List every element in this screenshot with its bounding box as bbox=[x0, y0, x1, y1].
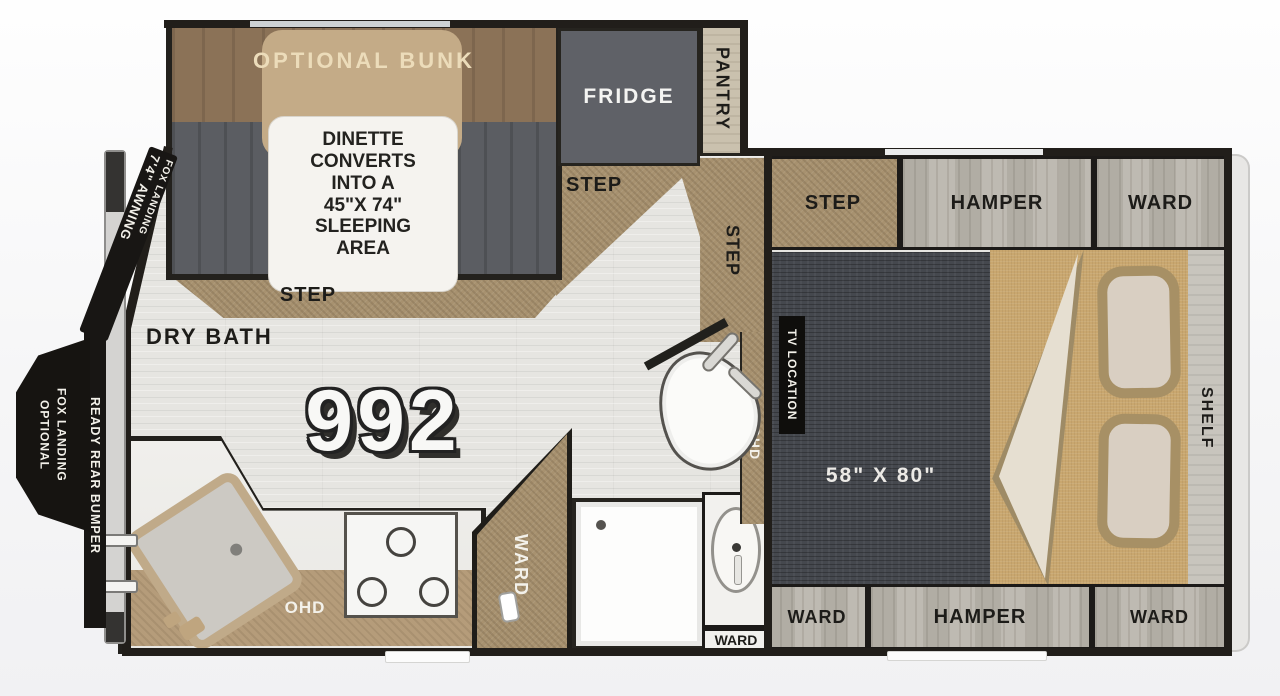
ward-bottom-right: WARD bbox=[1092, 584, 1227, 650]
galley-step-label: STEP bbox=[566, 174, 622, 197]
optional-fox-landing-flag: OPTIONAL FOX LANDING bbox=[16, 338, 90, 532]
kitchen-ohd-label: OHD bbox=[270, 598, 340, 618]
optional-fox-landing-line1: OPTIONAL bbox=[38, 400, 52, 470]
pillow bbox=[1097, 265, 1181, 398]
ward-bottom-right-label: WARD bbox=[1130, 607, 1189, 628]
floorplan-992: OHD WARD WARD OHD DINETTE CONVERTS INTO … bbox=[0, 0, 1280, 696]
dry-bath-label: DRY BATH bbox=[146, 324, 273, 350]
hamper-top-label: HAMPER bbox=[951, 192, 1044, 215]
dinette-window bbox=[250, 21, 450, 27]
rear-bumper-rail-segment bbox=[106, 152, 124, 212]
dinette-step-label: STEP bbox=[262, 284, 354, 307]
fridge-label: FRIDGE bbox=[583, 85, 674, 109]
optional-bunk-label: OPTIONAL BUNK bbox=[196, 48, 532, 74]
burner-icon bbox=[419, 577, 449, 607]
pantry-side-wall bbox=[740, 20, 748, 156]
bottom-wall bbox=[122, 648, 1232, 656]
pantry-label: PANTRY bbox=[712, 47, 733, 131]
bedroom-step-label: STEP bbox=[805, 192, 861, 215]
hamper-top: HAMPER bbox=[900, 156, 1094, 250]
right-wall bbox=[1224, 148, 1232, 656]
optional-fox-landing-line2: FOX LANDING bbox=[55, 388, 69, 482]
pantry: PANTRY bbox=[700, 22, 744, 156]
bedroom-divider-wall bbox=[764, 156, 772, 650]
bath-ward-label: WARD bbox=[510, 534, 531, 597]
sink-drain bbox=[228, 541, 245, 558]
tv-location-tag: TV LOCATION bbox=[779, 316, 805, 434]
stove bbox=[344, 512, 458, 618]
bedroom-window bbox=[885, 149, 1043, 155]
ward-bottom-left-label: WARD bbox=[788, 607, 847, 628]
vanity-ward-label: WARD bbox=[715, 632, 758, 648]
bottom-slide-marker bbox=[385, 651, 470, 663]
dinette-slideout: DINETTE CONVERTS INTO A 45"X 74" SLEEPIN… bbox=[166, 20, 562, 280]
hall-step-label-wrap: STEP bbox=[719, 208, 745, 294]
dinette-note-card: DINETTE CONVERTS INTO A 45"X 74" SLEEPIN… bbox=[268, 116, 458, 292]
bottom-window-marker bbox=[887, 651, 1047, 661]
bed-size-label: 58" X 80" bbox=[792, 464, 970, 488]
vanity-faucet-dot bbox=[732, 543, 741, 552]
ward-top: WARD bbox=[1094, 156, 1227, 250]
burner-icon bbox=[357, 577, 387, 607]
fridge: FRIDGE bbox=[558, 28, 700, 166]
rear-bumper-rail-segment bbox=[106, 612, 124, 642]
model-number: 992 bbox=[238, 378, 528, 464]
bed-shelf: SHELF bbox=[1188, 250, 1224, 586]
vanity-faucet-stem bbox=[734, 555, 742, 585]
shower-drain bbox=[596, 520, 606, 530]
shelf-label: SHELF bbox=[1197, 387, 1215, 449]
hamper-bottom: HAMPER bbox=[868, 584, 1092, 650]
burner-icon bbox=[386, 527, 416, 557]
hamper-bottom-label: HAMPER bbox=[934, 606, 1027, 629]
tv-location-label: TV LOCATION bbox=[785, 329, 799, 420]
bedroom-step: STEP bbox=[766, 156, 900, 250]
rear-cap bbox=[1232, 154, 1250, 652]
ward-bottom-left: WARD bbox=[766, 584, 868, 650]
shower-pan bbox=[572, 498, 706, 650]
rear-bumper-label: READY REAR BUMPER bbox=[88, 397, 102, 554]
ward-top-label: WARD bbox=[1128, 192, 1193, 215]
pillow bbox=[1097, 413, 1181, 548]
hall-step-label: STEP bbox=[722, 225, 743, 276]
